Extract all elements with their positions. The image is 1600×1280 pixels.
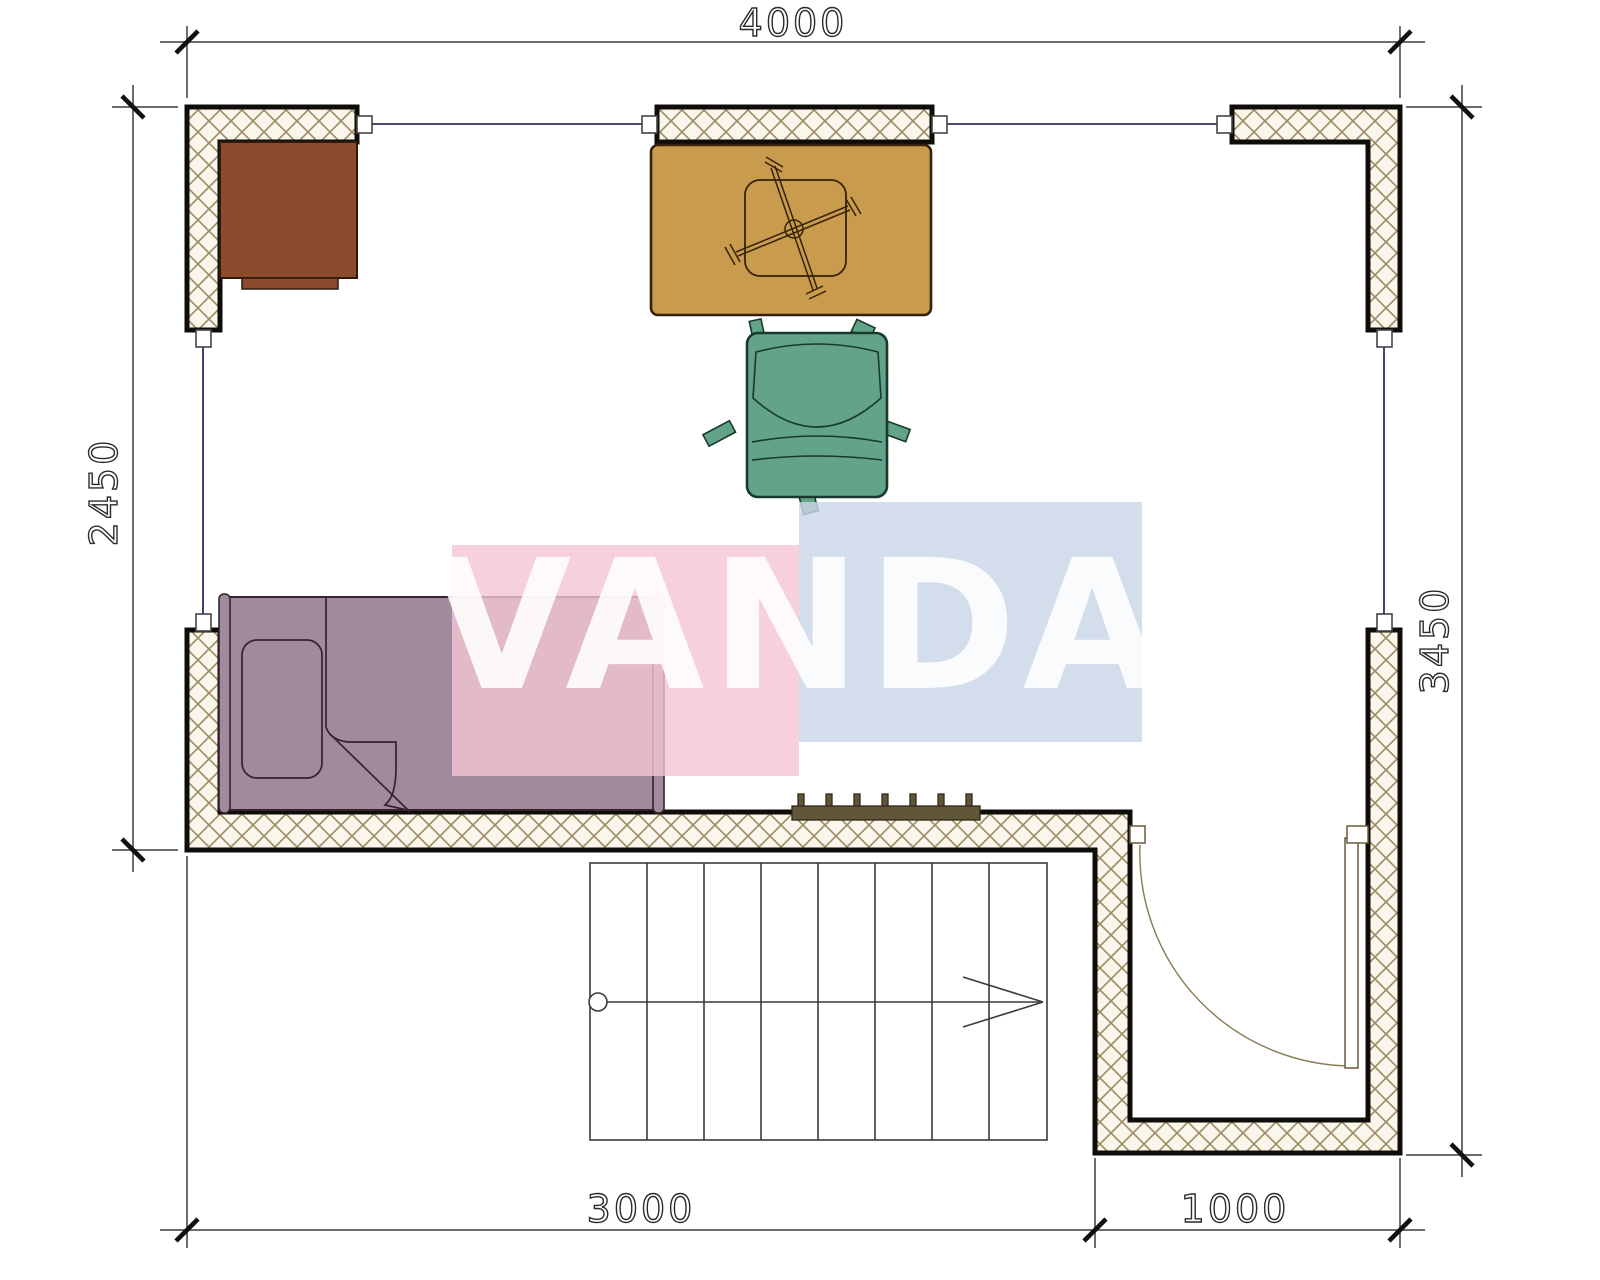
corner-desk (220, 142, 357, 289)
dim-label-left: 2450 (82, 438, 126, 547)
wall-top-right-corner (1232, 107, 1400, 330)
dim-label-right: 3450 (1413, 586, 1457, 695)
window-connector (642, 116, 657, 133)
radiator-fin (798, 794, 804, 807)
radiator (792, 794, 980, 820)
door-swing-arc (1140, 845, 1353, 1066)
window-connector (196, 330, 211, 347)
window-connector (196, 614, 211, 631)
dim-label-bottom-left: 3000 (587, 1187, 696, 1231)
window-connector (1217, 116, 1232, 133)
door-jamb-left (1130, 826, 1145, 843)
work-table (651, 145, 931, 315)
window-connector (1377, 330, 1392, 347)
radiator-fin (966, 794, 972, 807)
watermark-text: VANDA (432, 522, 1168, 731)
radiator-fin (938, 794, 944, 807)
office-chair (703, 319, 910, 515)
window-connector (932, 116, 947, 133)
stair-start-circle (589, 993, 607, 1011)
watermark: VANDA (432, 502, 1168, 776)
floor-plan-drawing: VANDA (0, 0, 1600, 1280)
wall-top-center (657, 107, 932, 142)
door-leaf (1345, 838, 1358, 1068)
window-connector (1377, 614, 1392, 631)
bed-end-left (219, 594, 230, 813)
radiator-fin (910, 794, 916, 807)
staircase (589, 863, 1047, 1140)
door-jamb-right (1347, 826, 1368, 843)
dim-label-top: 4000 (739, 1, 848, 45)
radiator-fin (854, 794, 860, 807)
chair-wheel (703, 421, 736, 447)
radiator-bar (792, 806, 980, 820)
floor-plan-page: VANDA (0, 0, 1600, 1280)
window-connector (357, 116, 372, 133)
radiator-fin (882, 794, 888, 807)
chair-body (747, 333, 887, 497)
dim-label-bottom-right: 1000 (1181, 1187, 1290, 1231)
radiator-fin (826, 794, 832, 807)
entry-door (1130, 826, 1368, 1068)
